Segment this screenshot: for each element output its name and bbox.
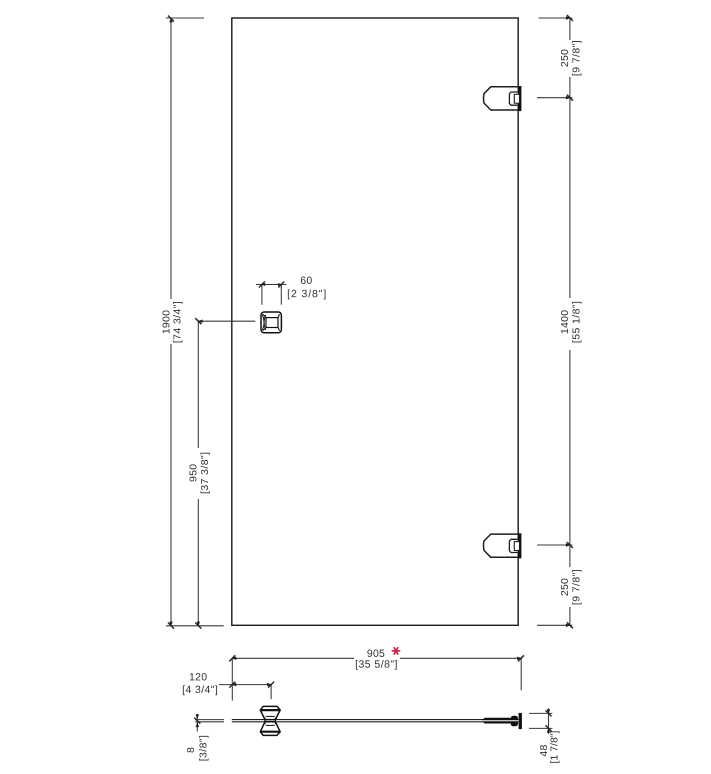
svg-text:1900: 1900 [160,310,172,334]
svg-text:[9 7/8"]: [9 7/8"] [571,40,583,76]
svg-text:250: 250 [559,578,571,596]
svg-text:950: 950 [188,464,200,482]
svg-text:[1 7/8"]: [1 7/8"] [549,730,561,763]
svg-text:[3/8"]: [3/8"] [197,735,209,762]
svg-text:[4 3/4"]: [4 3/4"] [182,684,218,696]
svg-text:[2 3/8"]: [2 3/8"] [287,288,327,300]
svg-text:120: 120 [189,671,207,683]
svg-text:[35 5/8"]: [35 5/8"] [355,659,398,671]
svg-text:[9 7/8"]: [9 7/8"] [571,569,583,605]
svg-text:[55 1/8"]: [55 1/8"] [571,301,583,343]
svg-text:60: 60 [300,275,312,287]
svg-text:[74 3/4"]: [74 3/4"] [172,301,184,343]
svg-text:250: 250 [559,49,571,67]
svg-text:1400: 1400 [559,310,571,334]
svg-text:8: 8 [185,747,197,753]
svg-text:[37 3/8"]: [37 3/8"] [199,452,211,494]
